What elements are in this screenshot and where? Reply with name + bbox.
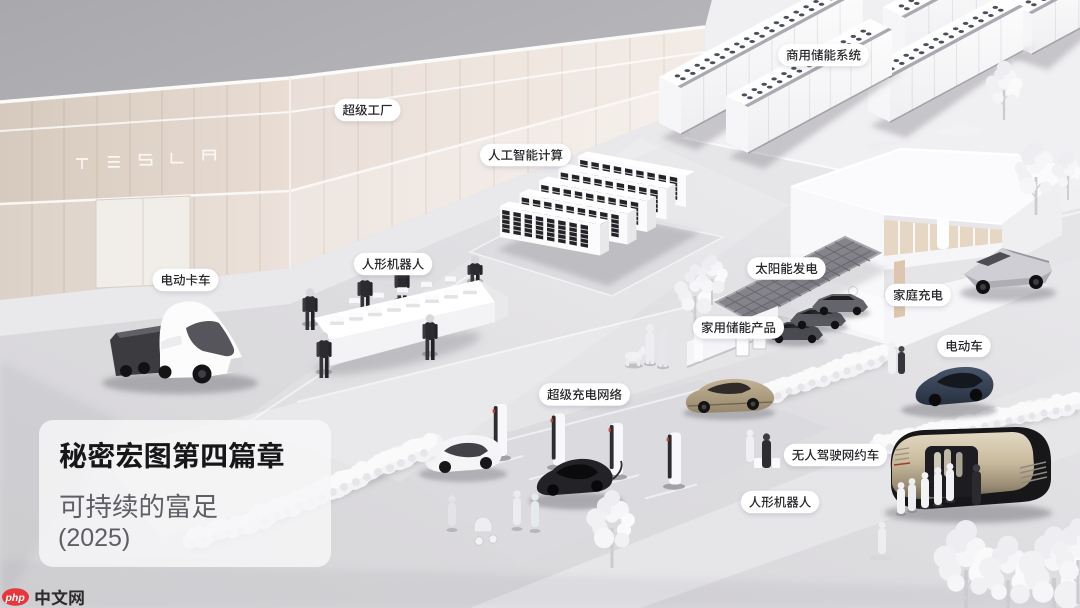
svg-text:php: php <box>5 592 26 604</box>
svg-text:(2025): (2025) <box>58 524 130 552</box>
